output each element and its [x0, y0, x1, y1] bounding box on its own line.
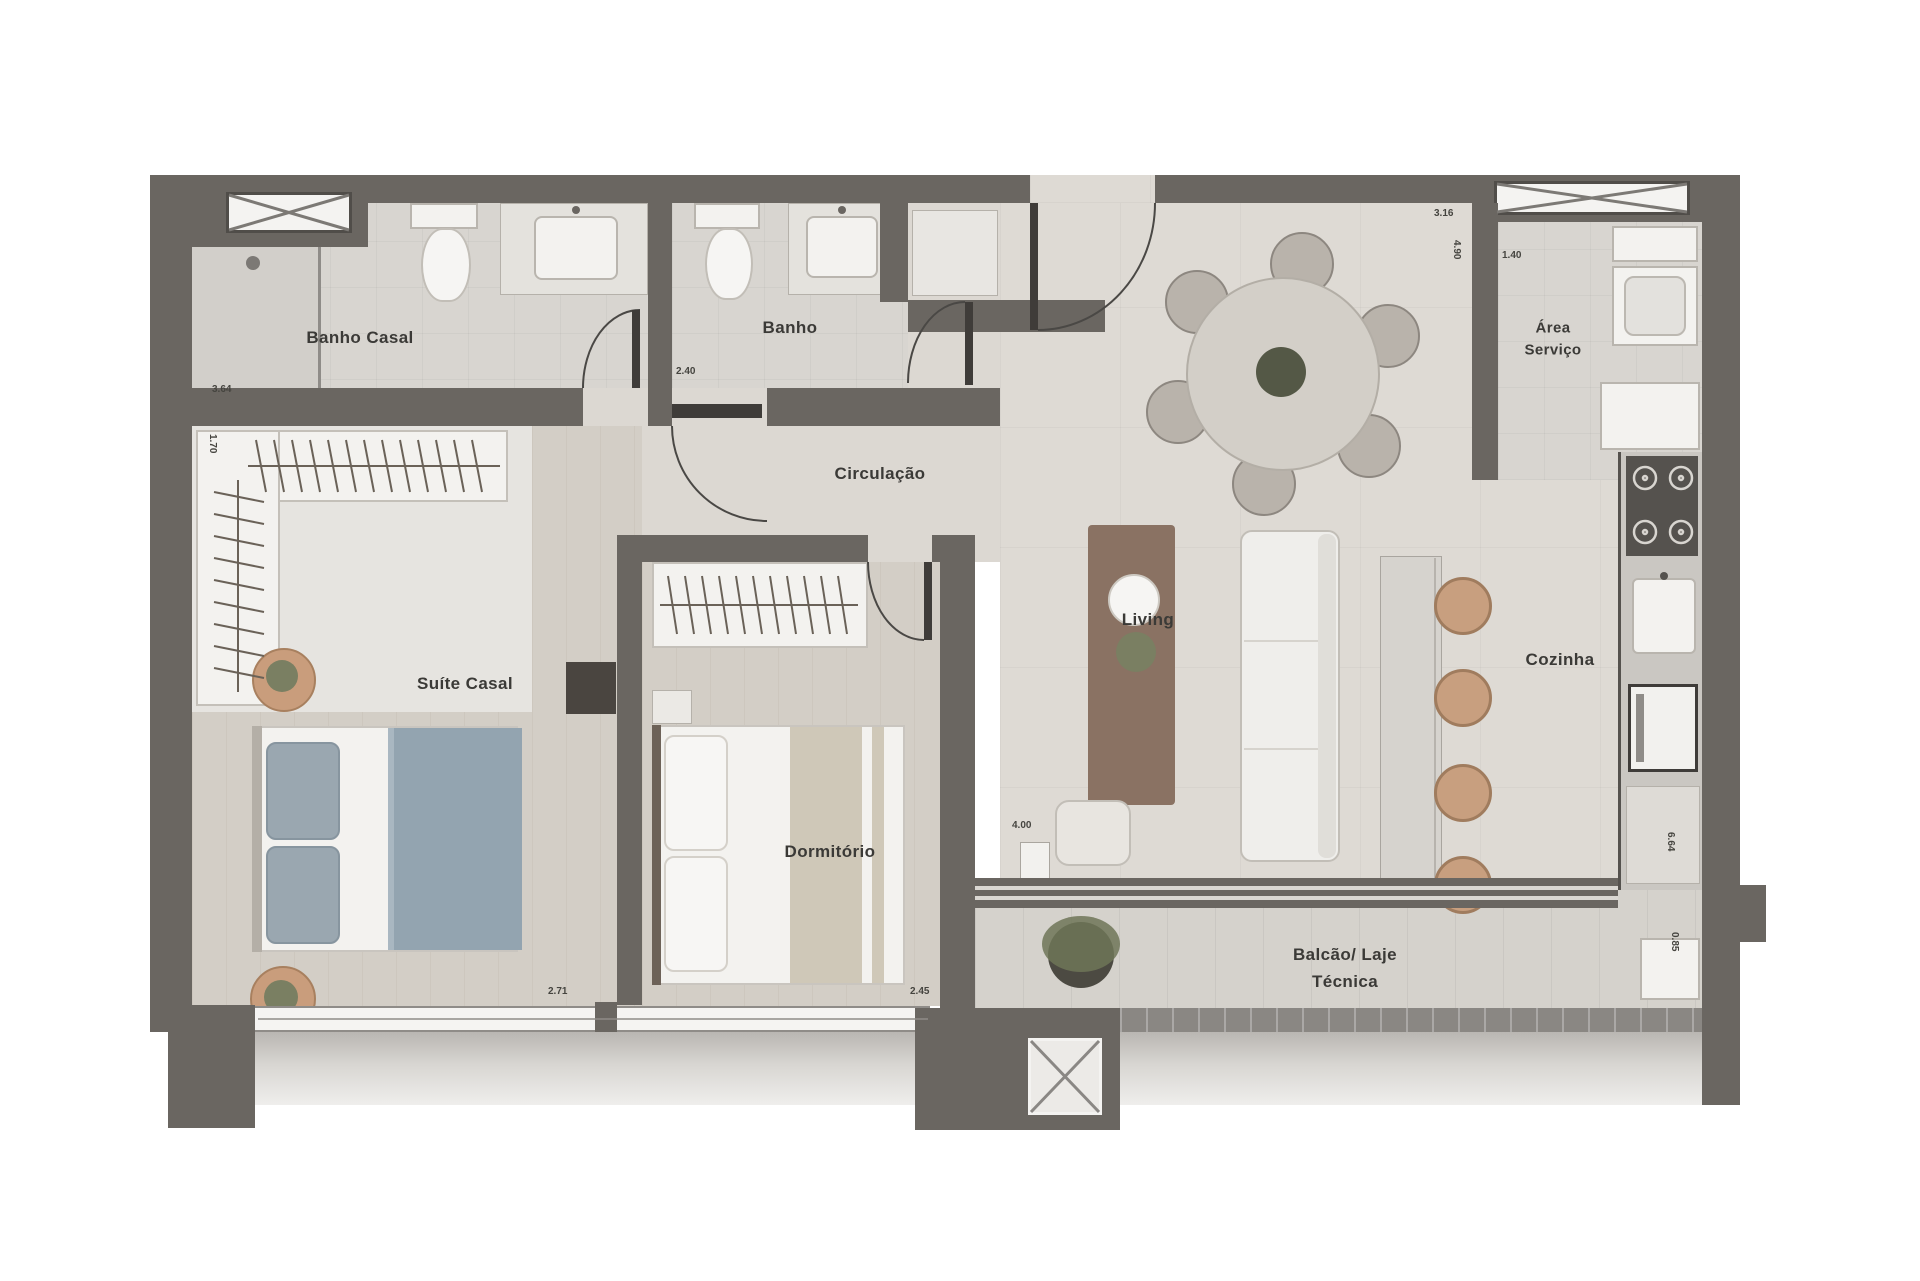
duct-x-topleft: [226, 192, 352, 233]
cooktop: [1626, 456, 1698, 556]
banho-casal-label: Banho Casal: [306, 328, 413, 348]
suite-bed-headboard: [252, 726, 262, 952]
banho-casal-sink-basin: [534, 216, 618, 280]
wall-dorm-north: [617, 535, 868, 562]
suite-pillow-2: [266, 846, 340, 944]
suite-tv-rack: [566, 662, 616, 714]
wall-entry-stub: [908, 300, 1105, 332]
wall-right-protrusion: [1740, 885, 1766, 942]
washing-machine-inner: [1624, 276, 1686, 336]
banho-faucet-icon: [838, 206, 846, 214]
dim-banho-casal-width: 3.64: [212, 384, 231, 395]
lounge-chair: [1055, 800, 1131, 866]
dorm-pillow-2: [664, 856, 728, 972]
entry-door-opening: [1030, 175, 1155, 203]
banho-toilet-bowl: [705, 228, 753, 300]
bedroom-window-band: [255, 1006, 930, 1032]
area-servico-label-line1: Área: [1536, 320, 1571, 337]
banho-toilet-tank: [694, 203, 760, 229]
dormitorio-label: Dormitório: [785, 842, 876, 862]
suite-casal-label: Suíte Casal: [417, 674, 513, 694]
sofa-back-cushions: [1318, 534, 1336, 858]
wall-baths-south-b: [767, 388, 1000, 426]
wall-left: [150, 175, 192, 1032]
corner-block-bottom-left: [168, 1005, 255, 1128]
dim-dining-length: 4.90: [1451, 240, 1462, 259]
banho-casal-shower-head-icon: [246, 256, 260, 270]
floorplan-stage: Banho Casal Banho Circulação Suíte Casal…: [0, 0, 1920, 1281]
dim-dining-width: 3.16: [1434, 208, 1453, 219]
cozinha-label: Cozinha: [1526, 650, 1595, 670]
banho-label: Banho: [763, 318, 818, 338]
balcony-plant-foliage: [1042, 916, 1120, 972]
wall-suite-dorm-divider: [617, 535, 642, 1005]
living-plant: [1116, 632, 1156, 672]
wall-balcony-front: [975, 878, 1618, 908]
circulacao-label: Circulação: [835, 464, 926, 484]
oven-handle: [1636, 694, 1644, 762]
banho-casal-toilet-bowl: [421, 228, 471, 302]
dorm-nightstand: [652, 690, 692, 724]
kitchen-island: [1380, 556, 1442, 905]
dim-closet-depth: 1.70: [207, 434, 218, 453]
balcao-label-line2: Técnica: [1312, 972, 1378, 992]
wall-banhos-divider: [648, 203, 672, 426]
suite-bed-blanket: [388, 728, 522, 950]
sofa-seat-divider-1: [1244, 640, 1318, 642]
wall-banho-right: [880, 203, 908, 302]
balcony-railing: [1120, 1008, 1702, 1032]
suite-plant-leaves-top: [266, 660, 298, 692]
island-stool-3: [1434, 764, 1492, 822]
dorm-wardrobe: [652, 562, 868, 648]
dishwasher: [1626, 786, 1700, 884]
banho-casal-faucet-icon: [572, 206, 580, 214]
living-label: Living: [1122, 610, 1174, 630]
wall-servico-left: [1472, 203, 1498, 480]
dining-centerpiece-plant: [1256, 347, 1306, 397]
wall-right: [1702, 175, 1740, 1105]
island-stool-1: [1434, 577, 1492, 635]
area-servico-label-line2: Serviço: [1525, 342, 1582, 359]
banho-casal-toilet-tank: [410, 203, 478, 229]
wall-baths-south-a: [192, 388, 583, 426]
kitchen-faucet-icon: [1660, 572, 1668, 580]
service-sink-tanque: [1612, 226, 1698, 262]
dim-cozinha-length: 6.64: [1665, 832, 1676, 851]
suite-door-leaf: [672, 404, 762, 418]
island-stool-2: [1434, 669, 1492, 727]
entry-niche-shelf: [912, 210, 998, 296]
sofa-seat-divider-2: [1244, 748, 1318, 750]
dim-dormitorio-width: 2.45: [910, 986, 929, 997]
window-mullion: [595, 1002, 617, 1032]
dim-balcao-depth: 0.85: [1669, 932, 1680, 951]
balcao-label-line1: Balcão/ Laje: [1293, 945, 1397, 965]
shaft-x-box: [1028, 1038, 1102, 1115]
fridge: [1600, 382, 1700, 450]
kitchen-sink: [1632, 578, 1696, 654]
wall-dorm-living-divider: [940, 535, 975, 1008]
dim-banho-width: 2.40: [676, 366, 695, 377]
dim-living-length: 4.00: [1012, 820, 1031, 831]
suite-pillow-1: [266, 742, 340, 840]
dim-area-servico-width: 1.40: [1502, 250, 1521, 261]
duct-x-topright: [1494, 181, 1690, 215]
dorm-bed-headboard: [652, 725, 661, 985]
dorm-pillow-1: [664, 735, 728, 851]
banho-sink-basin: [806, 216, 878, 278]
dim-suite-width: 2.71: [548, 986, 567, 997]
